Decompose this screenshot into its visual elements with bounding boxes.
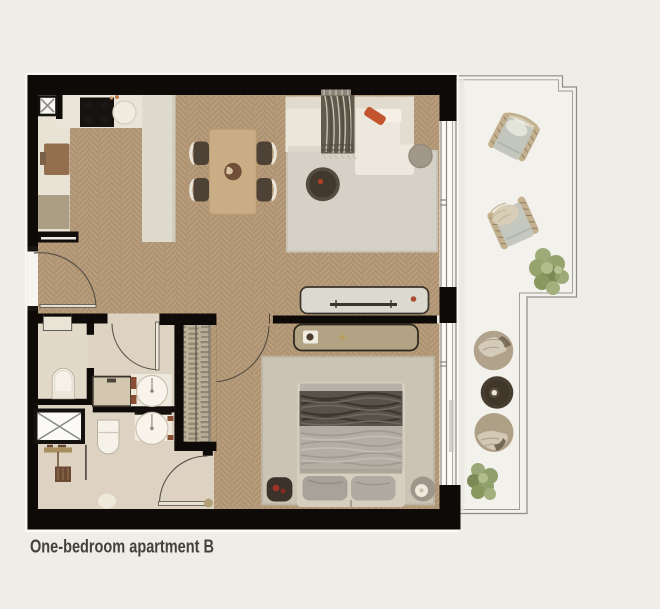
svg-text:One-bedroom apartment B: One-bedroom apartment B — [30, 537, 214, 557]
